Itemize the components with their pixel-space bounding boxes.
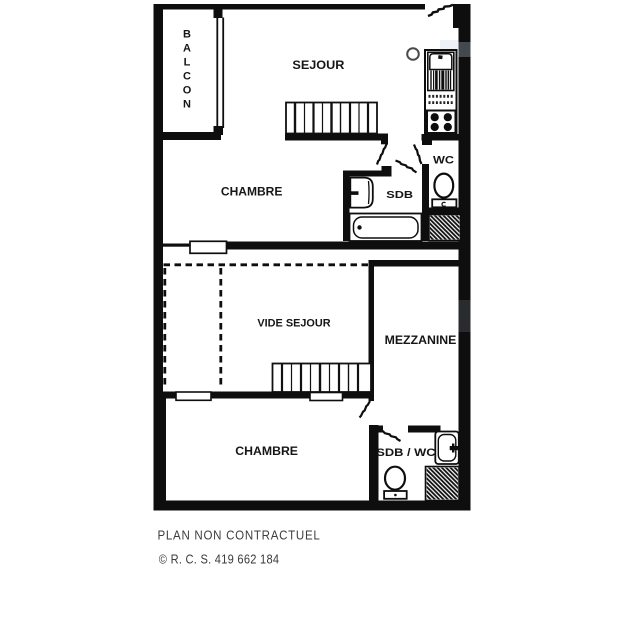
svg-text:SEJOUR: SEJOUR bbox=[292, 58, 344, 72]
svg-text:CHAMBRE: CHAMBRE bbox=[235, 446, 298, 458]
svg-text:VIDE SEJOUR: VIDE SEJOUR bbox=[257, 317, 330, 329]
svg-text:WC: WC bbox=[433, 154, 454, 166]
svg-text:A: A bbox=[183, 43, 191, 55]
svg-text:© R. C. S. 419 662 184: © R. C. S. 419 662 184 bbox=[159, 552, 279, 567]
svg-text:CHAMBRE: CHAMBRE bbox=[221, 187, 283, 199]
svg-text:L: L bbox=[184, 57, 191, 69]
svg-text:SDB: SDB bbox=[386, 189, 413, 201]
svg-text:C: C bbox=[183, 71, 191, 83]
svg-text:O: O bbox=[183, 85, 192, 97]
svg-text:SDB / WC: SDB / WC bbox=[376, 447, 435, 459]
svg-text:MEZZANINE: MEZZANINE bbox=[385, 333, 457, 347]
svg-text:PLAN NON CONTRACTUEL: PLAN NON CONTRACTUEL bbox=[158, 528, 321, 543]
svg-text:B: B bbox=[183, 29, 191, 41]
svg-text:N: N bbox=[183, 99, 191, 111]
